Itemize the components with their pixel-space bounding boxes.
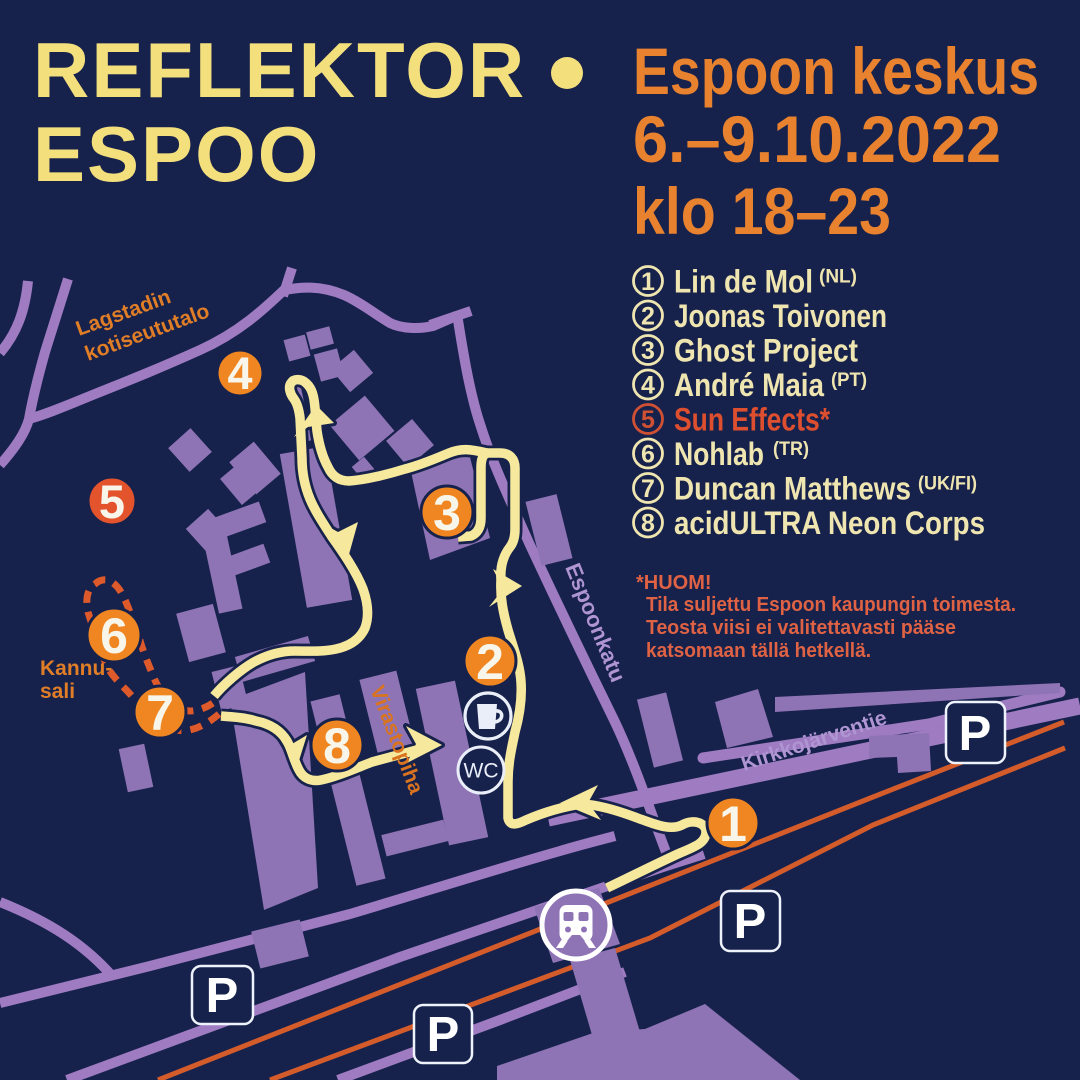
- svg-text:Espoon keskus: Espoon keskus: [633, 34, 1039, 108]
- svg-text:Nohlab: Nohlab: [674, 436, 764, 472]
- svg-text:8: 8: [323, 718, 351, 774]
- svg-text:P: P: [427, 1008, 460, 1062]
- svg-text:5: 5: [641, 406, 655, 434]
- svg-text:Teosta viisi ei valitettavasti: Teosta viisi ei valitettavasti pääse: [646, 617, 956, 639]
- svg-text:ESPOO: ESPOO: [33, 110, 320, 198]
- svg-text:2: 2: [641, 303, 655, 331]
- svg-text:6: 6: [100, 608, 128, 664]
- svg-text:Tila suljettu Espoon kaupungin: Tila suljettu Espoon kaupungin toimesta.: [646, 594, 1016, 616]
- svg-text:1: 1: [641, 268, 655, 296]
- svg-text:(PT): (PT): [831, 370, 867, 391]
- svg-text:Ghost Project: Ghost Project: [674, 333, 858, 369]
- svg-text:3: 3: [641, 337, 655, 365]
- svg-text:André Maia: André Maia: [674, 367, 824, 403]
- svg-text:3: 3: [433, 485, 461, 541]
- svg-text:Lin de Mol: Lin de Mol: [674, 264, 813, 300]
- svg-text:P: P: [734, 895, 767, 949]
- svg-text:klo 18–23: klo 18–23: [633, 174, 891, 248]
- svg-text:P: P: [959, 707, 992, 761]
- svg-text:2: 2: [476, 634, 504, 690]
- svg-text:(TR): (TR): [773, 439, 809, 460]
- svg-text:8: 8: [641, 510, 655, 538]
- svg-text:5: 5: [99, 475, 125, 528]
- svg-text:4: 4: [641, 372, 655, 400]
- svg-text:Joonas Toivonen: Joonas Toivonen: [674, 298, 887, 334]
- svg-text:P: P: [206, 969, 239, 1023]
- svg-text:(UK/FI): (UK/FI): [918, 474, 977, 495]
- svg-text:katsomaan tällä hetkellä.: katsomaan tällä hetkellä.: [646, 640, 871, 662]
- svg-text:(NL): (NL): [819, 267, 857, 288]
- svg-text:acidULTRA Neon Corps: acidULTRA Neon Corps: [674, 505, 985, 541]
- svg-text:REFLEKTOR: REFLEKTOR: [33, 26, 526, 114]
- svg-text:*HUOM!: *HUOM!: [636, 572, 712, 594]
- svg-text:7: 7: [146, 685, 174, 741]
- svg-text:6.–9.10.2022: 6.–9.10.2022: [633, 102, 1001, 176]
- svg-text:Sun Effects*: Sun Effects*: [674, 402, 830, 438]
- svg-text:4: 4: [227, 348, 252, 399]
- svg-text:1: 1: [719, 796, 747, 852]
- svg-text:WC: WC: [464, 760, 499, 783]
- svg-text:Duncan Matthews: Duncan Matthews: [674, 471, 911, 507]
- svg-text:7: 7: [641, 475, 655, 503]
- svg-text:sali: sali: [40, 680, 75, 703]
- svg-text:6: 6: [641, 441, 655, 469]
